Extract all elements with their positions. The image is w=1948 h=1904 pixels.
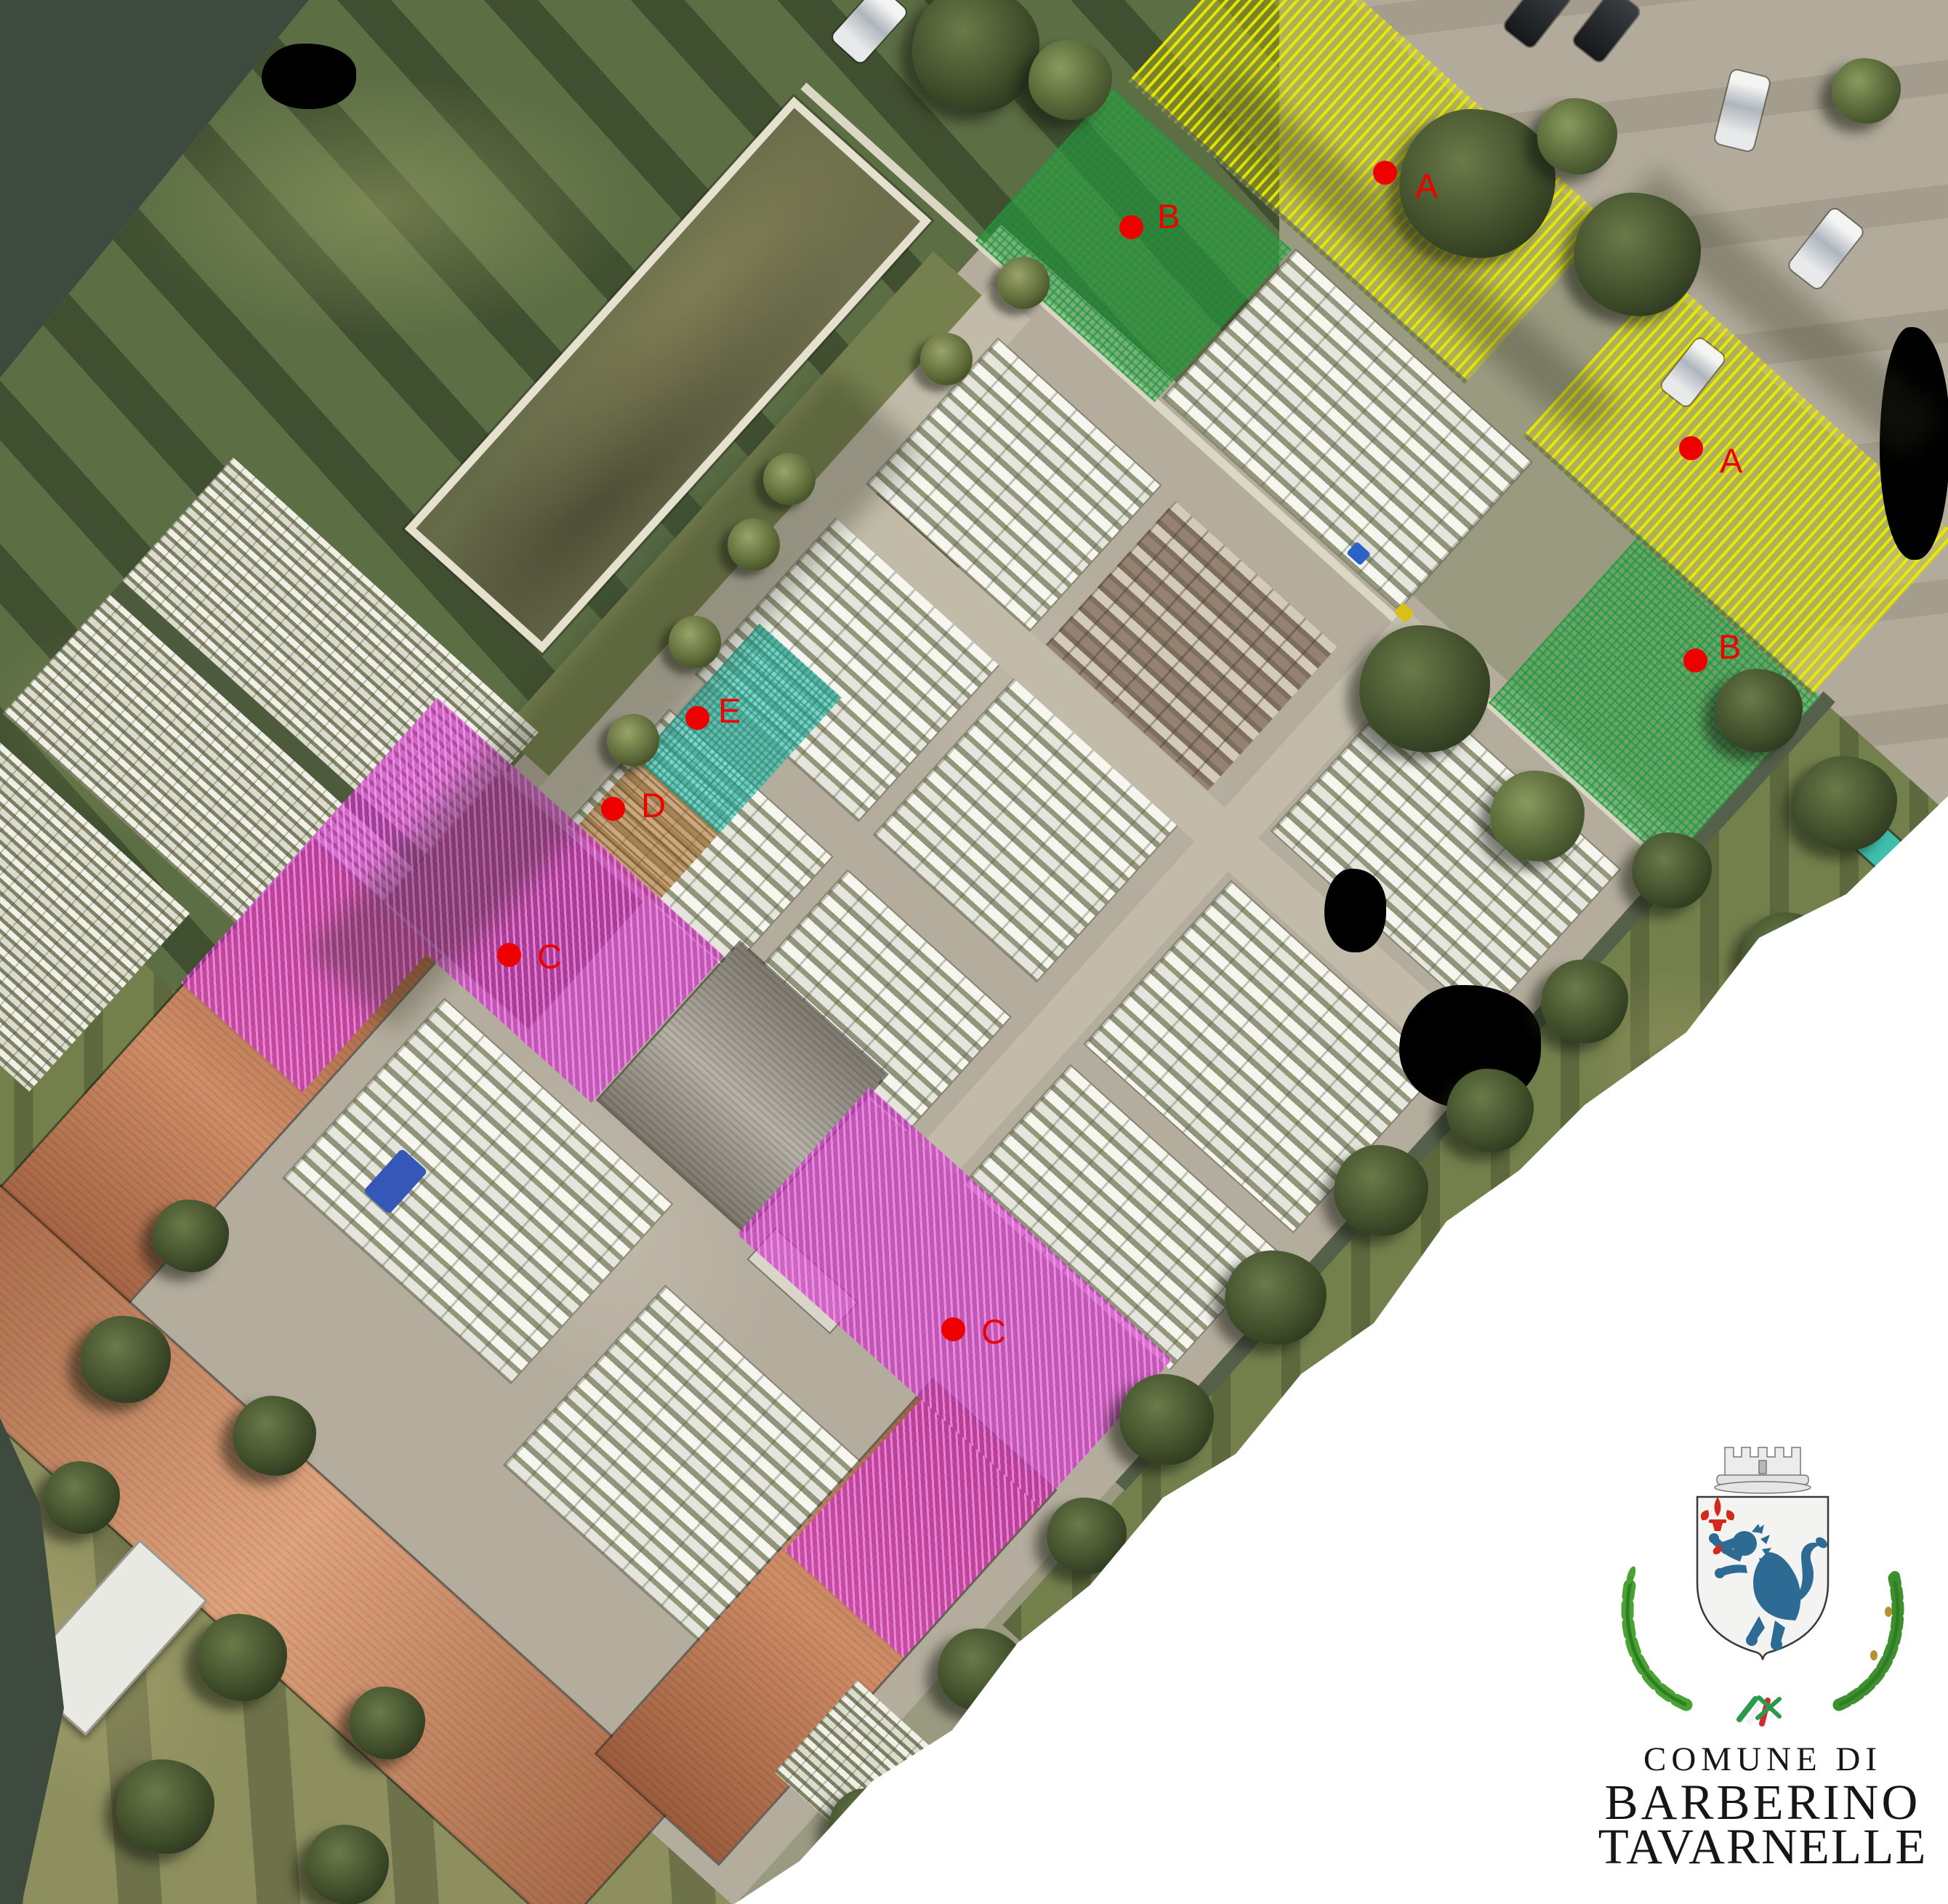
marker-label-b-east: B (1718, 628, 1741, 666)
marker-dot-c-west (497, 943, 521, 967)
marker-dot-b-north (1119, 215, 1143, 239)
marker-label-e: E (718, 692, 741, 730)
marker-layer: ABABEDCC (0, 0, 1948, 1904)
marker-dot-c-south (941, 1317, 965, 1341)
marker-dot-a-east (1679, 436, 1703, 460)
marker-label-c-south: C (981, 1313, 1006, 1351)
marker-label-d: D (641, 787, 666, 824)
marker-label-b-north: B (1157, 198, 1180, 236)
marker-label-a-east: A (1720, 442, 1742, 480)
marker-dot-e (685, 706, 709, 730)
marker-label-c-west: C (537, 938, 562, 976)
marker-dot-d (601, 797, 625, 821)
orthophoto-map-page: COMUNE DI BARBERINO TAVARNELLE ABABEDCC (0, 0, 1948, 1904)
marker-dot-a-north (1373, 161, 1397, 185)
marker-label-a-north: A (1415, 167, 1438, 205)
marker-dot-b-east (1683, 648, 1707, 672)
